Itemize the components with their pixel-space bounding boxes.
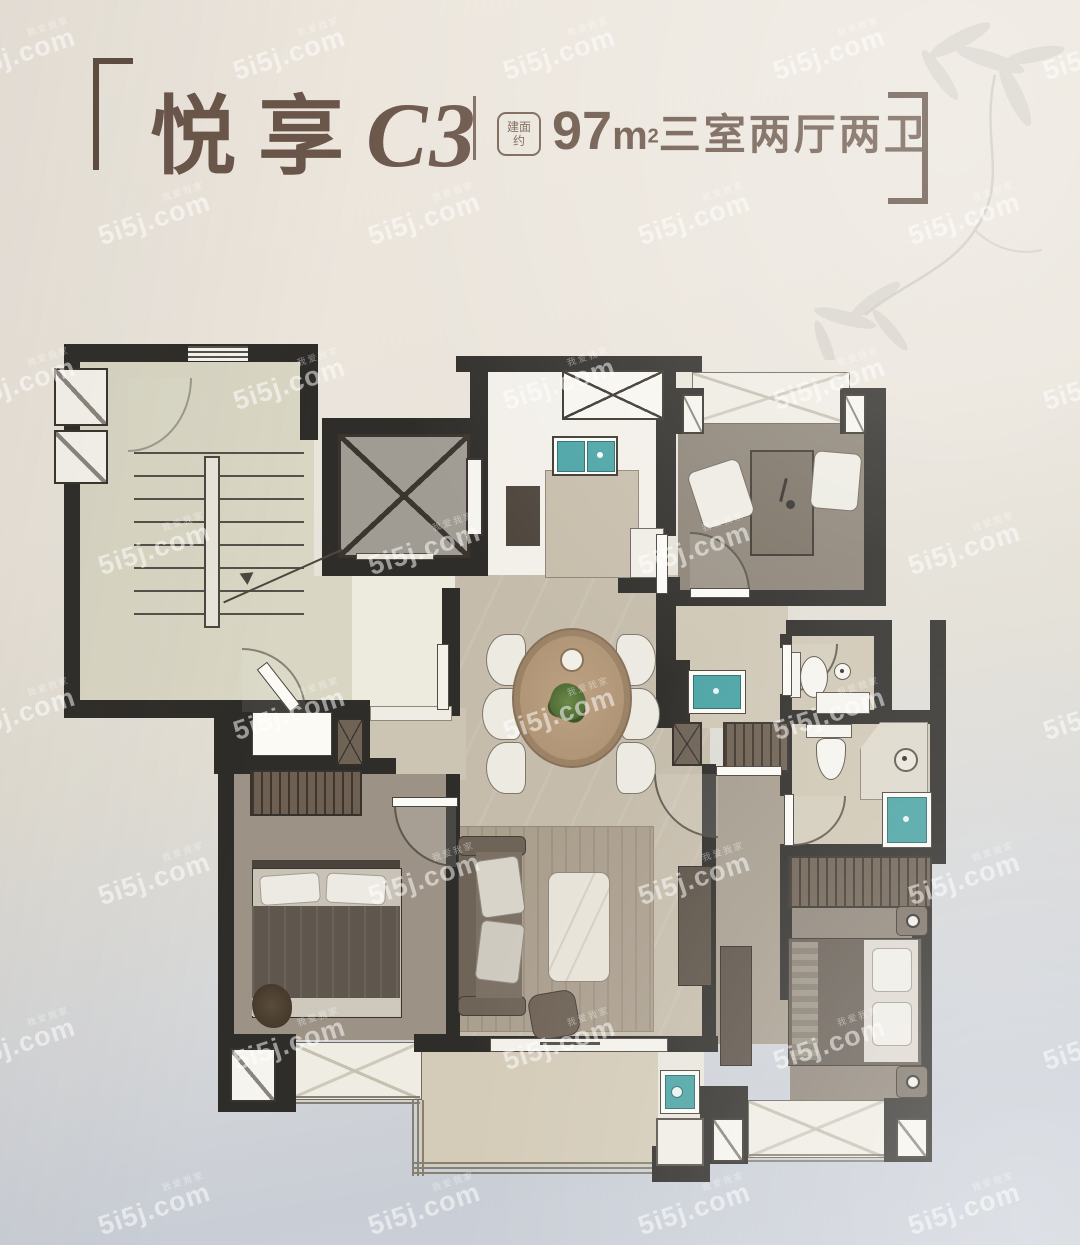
faucet-dot — [903, 816, 909, 822]
pillow — [872, 948, 912, 992]
elevator — [338, 434, 470, 558]
title-cn: 悦享 — [150, 89, 366, 185]
pillow — [325, 872, 386, 905]
sliding-door — [437, 644, 449, 710]
balcony-window-south — [412, 1162, 670, 1176]
bedroom2-wardrobe — [250, 770, 362, 816]
stair-handrail — [204, 456, 220, 628]
desk — [750, 450, 814, 556]
badge-line1: 建面 — [507, 120, 531, 134]
balcony-cabinet — [656, 1118, 704, 1166]
master-bed-drape — [792, 942, 818, 1060]
nightstand-lamp — [906, 914, 920, 928]
poster: 悦享C3 建面 约 97m2三室两厅两卫 — [0, 0, 1080, 1245]
title-code: C3 — [366, 84, 477, 186]
study-bay-window — [692, 372, 850, 424]
wall — [930, 620, 946, 864]
watermark: 我爱我家5i5j.com — [632, 178, 755, 252]
bathroom-door-leaf — [782, 644, 792, 696]
elevator-door-slot — [466, 458, 483, 536]
bedroom2-plant — [252, 984, 292, 1028]
shower-head-dot — [902, 756, 907, 761]
kitchen-counter — [545, 470, 639, 578]
suite-door-leaf — [716, 766, 782, 776]
elevator-door-line — [356, 553, 434, 560]
wall — [64, 700, 214, 718]
watermark: 我爱我家5i5j.com — [1037, 673, 1080, 747]
suite-closet — [723, 722, 789, 772]
pillow — [872, 1002, 912, 1046]
slider-handle — [540, 1042, 600, 1045]
stair-window — [54, 430, 108, 484]
wall — [322, 558, 488, 576]
pipe-shaft — [672, 722, 702, 766]
watermark: 我爱我家5i5j.com — [0, 1003, 79, 1077]
watermark: 我爱我家5i5j.com — [92, 838, 215, 912]
wall — [874, 620, 892, 718]
page-title: 悦享C3 — [150, 66, 477, 191]
watermark: 我爱我家5i5j.com — [497, 13, 620, 87]
title-divider — [473, 96, 476, 160]
study-door-leaf — [690, 588, 750, 598]
sofa-cushion — [475, 920, 526, 985]
watermark: 我爱我家5i5j.com — [362, 1168, 485, 1242]
tv-cabinet — [678, 866, 712, 986]
leaf-decoration — [780, 0, 1080, 360]
balcony-sliding-door — [490, 1038, 668, 1052]
wall — [322, 418, 488, 434]
bath-faucet-dot — [840, 669, 844, 673]
nightstand-lamp — [906, 1075, 920, 1089]
sofa-cushion — [474, 855, 526, 919]
dining-chair — [616, 742, 656, 794]
area-unit: m — [612, 114, 648, 158]
bracket-left — [93, 58, 133, 170]
master-bay-window — [748, 1100, 886, 1158]
master-toilet-tank — [806, 724, 852, 738]
kitchen-door-leaf — [656, 534, 668, 594]
entry-recess — [252, 712, 332, 756]
bedroom2-bay-window — [290, 1042, 422, 1100]
dining-chair — [486, 742, 526, 794]
faucet-dot — [713, 688, 719, 694]
desk-lamp — [786, 500, 795, 509]
area-value: 97 — [552, 101, 612, 161]
corner-window — [712, 1118, 744, 1162]
area-badge: 建面 约 — [497, 112, 541, 156]
stair-vent-window — [188, 346, 248, 361]
bath-counter — [816, 692, 870, 714]
pipe-shaft — [336, 718, 364, 766]
wall — [656, 590, 876, 606]
study-corner-window — [682, 394, 704, 434]
master-bay-frame — [748, 1154, 884, 1164]
corner-window — [230, 1048, 276, 1102]
kitchen-sink-basin — [557, 441, 585, 472]
badge-line2: 约 — [513, 134, 525, 148]
bedroom2-door-leaf — [392, 797, 458, 807]
wall — [300, 344, 318, 440]
ottoman — [526, 988, 581, 1042]
kitchen-cabinet — [506, 486, 540, 546]
stair-window — [54, 368, 108, 426]
master-bath-door-leaf — [784, 794, 794, 846]
watermark: 我爱我家5i5j.com — [92, 1168, 215, 1242]
watermark: 我爱我家5i5j.com — [902, 508, 1025, 582]
table-bowl — [560, 648, 584, 672]
bedroom2-bay-frame — [290, 1096, 420, 1108]
area-sup: 2 — [648, 126, 659, 148]
watermark: 我爱我家5i5j.com — [1037, 1003, 1080, 1077]
desk-chair — [810, 450, 863, 512]
study-corner-window — [844, 394, 866, 434]
sofa-arm — [458, 996, 526, 1016]
corner-window — [896, 1118, 928, 1158]
faucet-dot — [597, 452, 603, 458]
washing-machine-door — [671, 1086, 683, 1098]
hallway-cabinet — [720, 946, 752, 1066]
coffee-table — [548, 872, 610, 982]
watermark: 我爱我家5i5j.com — [0, 13, 79, 87]
watermark: 我爱我家5i5j.com — [902, 1168, 1025, 1242]
stairwell-floor — [314, 576, 354, 712]
range-hood-vent — [562, 370, 664, 420]
wall — [864, 388, 886, 606]
master-wardrobe — [788, 856, 932, 908]
wall — [218, 758, 234, 1050]
pillow — [259, 872, 321, 906]
balcony-floor — [420, 1042, 660, 1166]
